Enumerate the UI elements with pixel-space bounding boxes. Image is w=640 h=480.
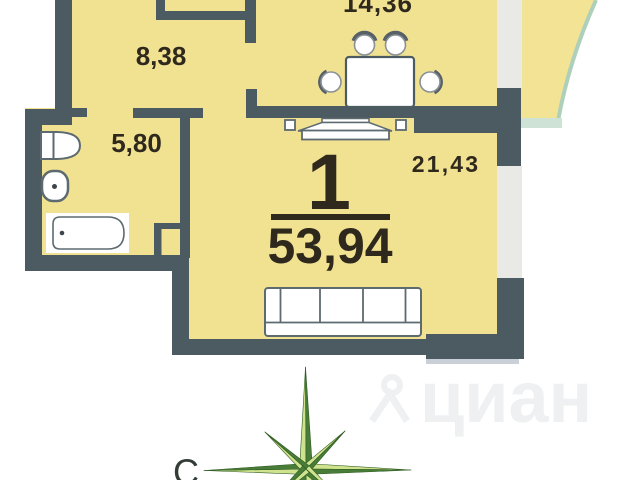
svg-text:C: C	[173, 452, 199, 480]
svg-text:53,94: 53,94	[267, 218, 392, 274]
svg-text:14,36: 14,36	[343, 0, 413, 18]
svg-text:5,80: 5,80	[111, 128, 162, 158]
svg-text:8,38: 8,38	[136, 41, 187, 71]
svg-text:1: 1	[307, 137, 351, 226]
svg-text:21,43: 21,43	[412, 151, 481, 177]
svg-text:циан: циан	[420, 358, 592, 438]
